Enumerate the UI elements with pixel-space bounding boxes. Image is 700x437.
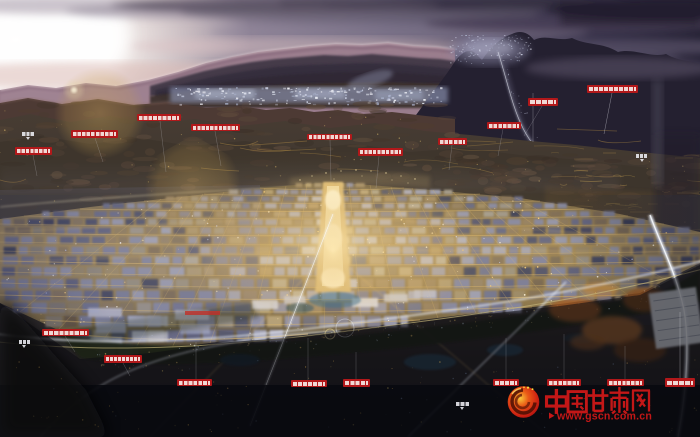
svg-text:www.gscn.com.cn: www.gscn.com.cn: [556, 411, 652, 423]
